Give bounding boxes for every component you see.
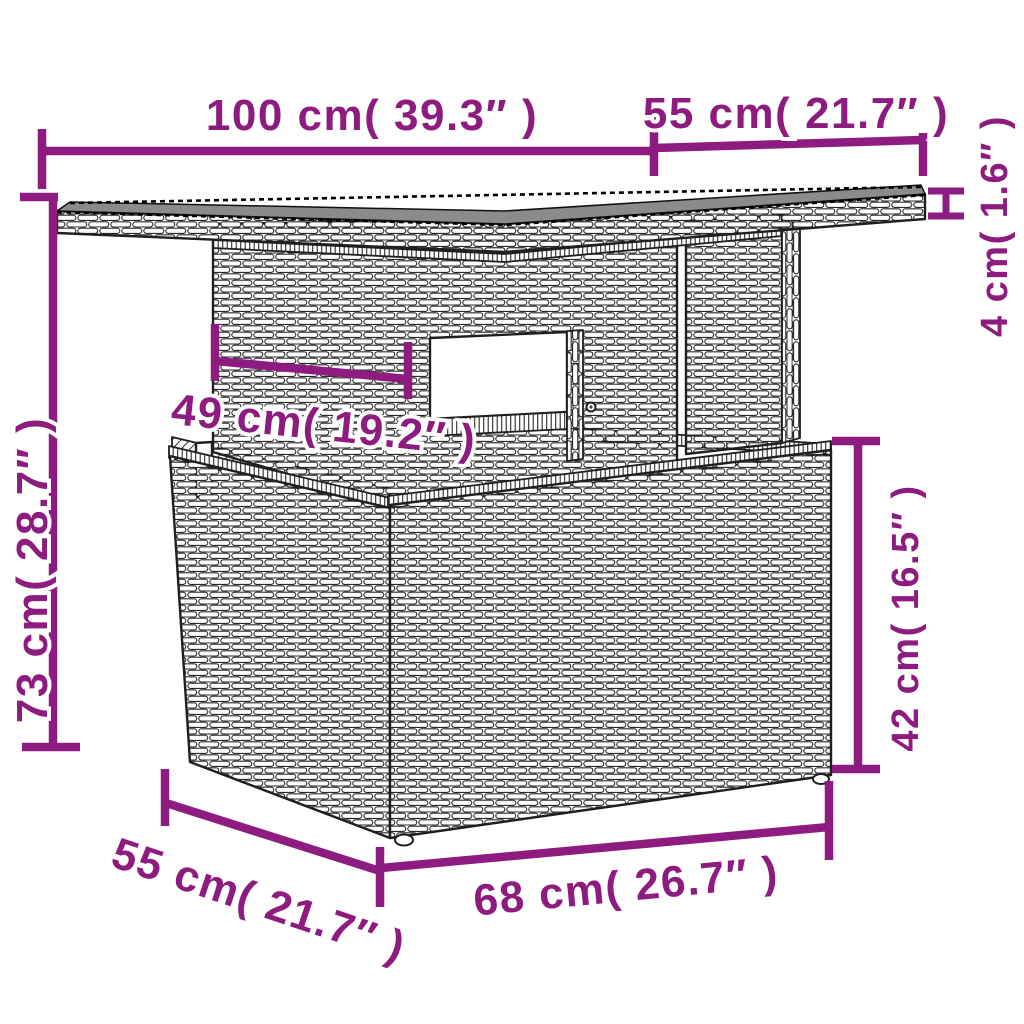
base-box-left-face (170, 456, 390, 838)
foot (395, 835, 413, 846)
dimension-label-tabletop-thickness: 4 cm( 1.6″ ) (974, 115, 1016, 337)
dimension-label-overall-height: 73 cm( 28.7″ ) (8, 417, 57, 723)
right-support-column (686, 215, 782, 454)
window-opening (430, 332, 567, 419)
dimension-label-tabletop-width: 100 cm( 39.3″ ) (206, 91, 538, 140)
product-dimension-diagram: 100 cm( 39.3″ ) 55 cm( 21.7″ ) 4 cm( 1.6… (0, 0, 1024, 1024)
right-support-column-side (782, 215, 800, 443)
furniture-line-drawing-canvas: 100 cm( 39.3″ ) 55 cm( 21.7″ ) 4 cm( 1.6… (0, 0, 1024, 1024)
dimension-label-base-height: 42 cm( 16.5″ ) (885, 484, 927, 751)
hinge-pin (589, 405, 592, 408)
dimension-label-tabletop-depth: 55 cm( 21.7″ ) (643, 89, 949, 138)
window-right-post (567, 330, 583, 461)
dim-line-tabletop-depth (654, 140, 923, 148)
rattan-table-drawing (57, 185, 925, 846)
base-box-front-face (390, 450, 831, 838)
dimension-label-base-depth: 55 cm( 21.7″ ) (106, 829, 412, 973)
